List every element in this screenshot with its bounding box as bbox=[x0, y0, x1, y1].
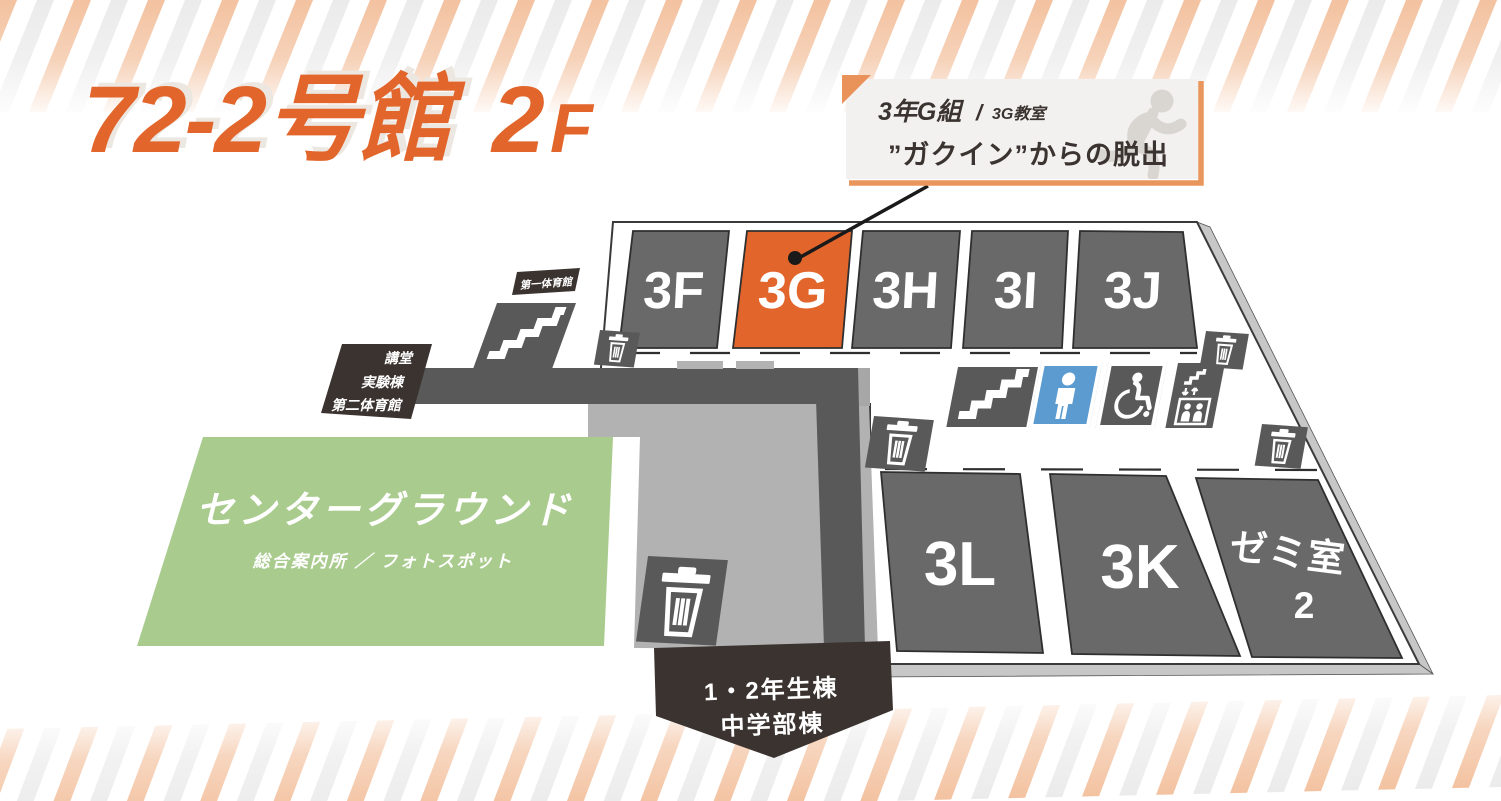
north-exit-label: 第一体育館 bbox=[512, 268, 580, 295]
stairs-icon bbox=[473, 303, 576, 368]
title-floor-number: 2 bbox=[490, 67, 544, 173]
trash-icon bbox=[865, 416, 934, 472]
trash-icon bbox=[594, 330, 640, 367]
plate-edge-bottom bbox=[858, 664, 1433, 677]
trash-icon bbox=[1200, 331, 1249, 370]
callout-class-name: 3年G組 bbox=[878, 98, 964, 126]
west-exit-line2: 実験棟 bbox=[361, 374, 406, 390]
room-3G-label: 3G bbox=[757, 262, 829, 320]
callout-event-title: ”ガクイン”からの脱出 bbox=[888, 140, 1169, 170]
corridor-notch bbox=[858, 368, 870, 406]
floor-map-page: 72-2号館 72-2号館 2 F センターグラウンド 総合案内所 ／ フォトス… bbox=[0, 0, 1501, 801]
center-ground-subtitle: 総合案内所 ／ フォトスポット bbox=[252, 552, 513, 571]
toilet-icon bbox=[1029, 362, 1103, 428]
corridor-west bbox=[404, 368, 858, 404]
room-3J-label: 3J bbox=[1102, 262, 1163, 320]
center-ground-area bbox=[137, 437, 613, 646]
trash-icon bbox=[636, 556, 728, 646]
callout-pointer-dot bbox=[788, 251, 802, 265]
south-exit-line2: 中学部棟 bbox=[720, 709, 825, 741]
room-3F-label: 3F bbox=[642, 262, 706, 320]
stairs-icon bbox=[946, 367, 1038, 427]
room-3H-label: 3H bbox=[871, 262, 940, 320]
west-exit-line3: 第二体育館 bbox=[331, 397, 403, 413]
callout-room-name: 3G教室 bbox=[992, 105, 1048, 123]
trash-icon bbox=[1255, 424, 1308, 469]
title-building: 72-2号館 bbox=[83, 67, 466, 173]
west-exit-line1: 講堂 bbox=[384, 350, 414, 366]
page-title: 72-2号館 72-2号館 2 F bbox=[83, 63, 595, 173]
room-3L-label: 3L bbox=[924, 530, 996, 599]
south-exit-line1: 1・2年生棟 bbox=[704, 674, 840, 707]
room-seminar2-number: 2 bbox=[1294, 585, 1317, 626]
west-exit-label: 講堂 実験棟 第二体育館 bbox=[321, 344, 432, 419]
room-3I-label: 3I bbox=[993, 262, 1039, 320]
title-floor-letter: F bbox=[550, 89, 595, 167]
room-3G-callout: 3年G組 / 3G教室 ”ガクイン”からの脱出 bbox=[842, 75, 1201, 183]
room-3K-label: 3K bbox=[1100, 533, 1179, 602]
center-ground: センターグラウンド 総合案内所 ／ フォトスポット bbox=[137, 437, 613, 646]
corridor-door-tab bbox=[677, 361, 723, 369]
corridor-door-tab bbox=[736, 361, 774, 369]
center-ground-title: センターグラウンド bbox=[196, 490, 574, 532]
floor-map-canvas: 72-2号館 72-2号館 2 F センターグラウンド 総合案内所 ／ フォトス… bbox=[0, 0, 1501, 801]
